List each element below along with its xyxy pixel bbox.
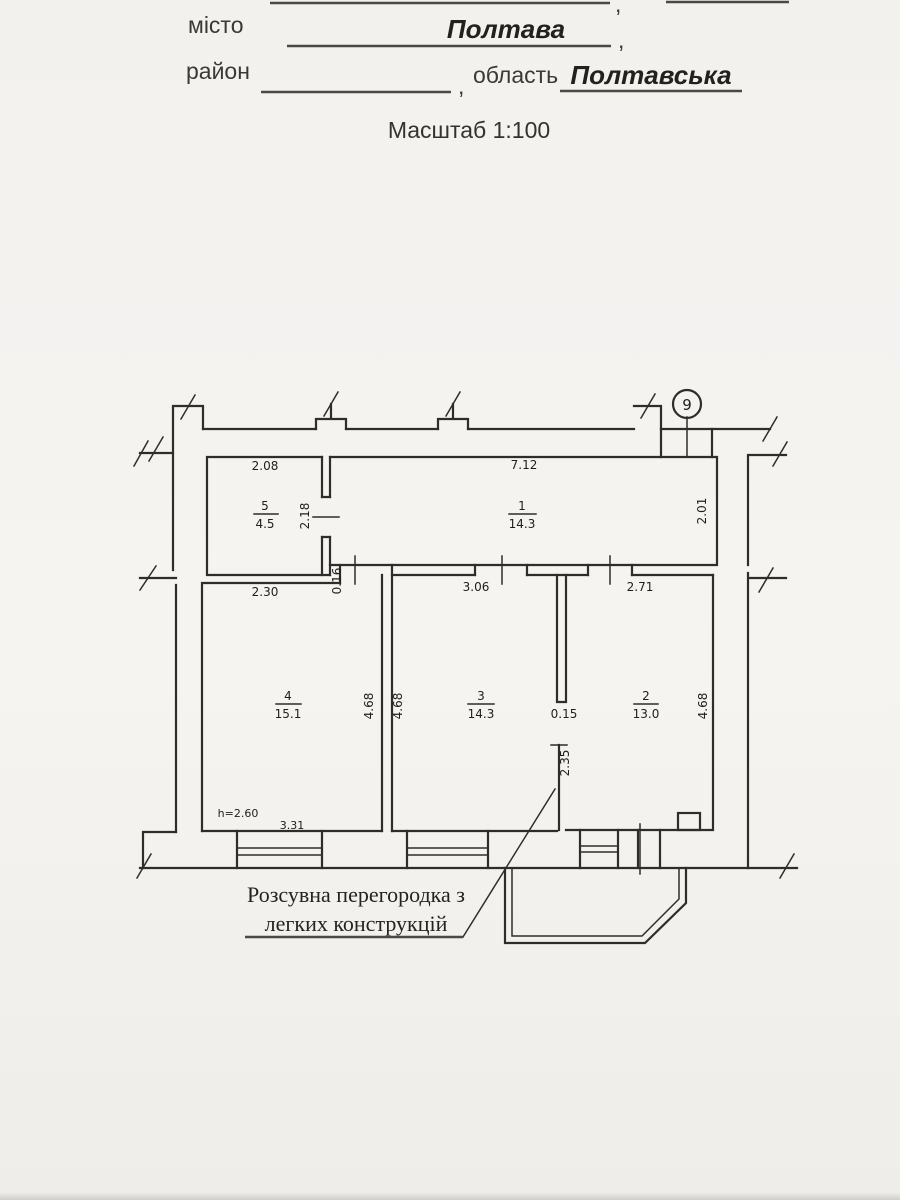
scan-edge-shadow xyxy=(0,1192,900,1200)
dim-room4-depth: 4.68 xyxy=(362,693,376,720)
annotation-line2: легких конструкцій xyxy=(265,911,448,936)
room2-area: 13.0 xyxy=(633,707,660,721)
dim-room2-top: 2.71 xyxy=(627,580,654,594)
balcony xyxy=(505,868,686,943)
room4-area: 15.1 xyxy=(275,707,302,721)
room1-area: 14.3 xyxy=(509,517,536,531)
dim-room3-top: 3.06 xyxy=(463,580,490,594)
district-label: район xyxy=(186,58,250,84)
room5-number: 5 xyxy=(261,499,269,513)
city-comma: , xyxy=(618,27,624,53)
room1-number: 1 xyxy=(518,499,526,513)
header-form: , місто Полтава , район , область Полтав… xyxy=(186,0,789,143)
dim-partition-thickness: 0.15 xyxy=(551,707,578,721)
interior-walls xyxy=(202,457,717,831)
floor-plan-drawing: , місто Полтава , район , область Полтав… xyxy=(0,0,900,1200)
room-labels: 1 14.3 5 4.5 4 15.1 3 14.3 2 13.0 xyxy=(254,499,659,721)
city-label: місто xyxy=(188,12,244,38)
dim-room5-door: 2.18 xyxy=(298,503,312,530)
district-comma: , xyxy=(458,73,464,99)
dim-ceiling-height: h=2.60 xyxy=(218,807,259,820)
partition-annotation: Розсувна перегородка з легких конструкці… xyxy=(247,882,465,936)
scale-label: Масштаб 1:100 xyxy=(388,117,550,143)
exterior-walls xyxy=(134,392,797,878)
oblast-label: область xyxy=(473,62,558,88)
room4-number: 4 xyxy=(284,689,292,703)
dim-room2-depth: 4.68 xyxy=(696,693,710,720)
room3-number: 3 xyxy=(477,689,485,703)
dim-window-span: 3.31 xyxy=(280,819,305,832)
scanned-floorplan-page: , місто Полтава , район , область Полтав… xyxy=(0,0,900,1200)
city-value: Полтава xyxy=(447,14,565,44)
annotation-line1: Розсувна перегородка з xyxy=(247,882,465,907)
oblast-value: Полтавська xyxy=(570,60,731,90)
header-top-comma: , xyxy=(615,0,621,17)
room2-number: 2 xyxy=(642,689,650,703)
dim-room4-width: 2.30 xyxy=(252,585,279,599)
axis-number: 9 xyxy=(682,396,692,414)
dim-partition-length: 2.35 xyxy=(558,750,572,777)
annotation-leader-line xyxy=(463,789,555,937)
room3-area: 14.3 xyxy=(468,707,495,721)
axis-marker-9: 9 xyxy=(673,390,701,418)
dim-room5-width: 2.08 xyxy=(252,459,279,473)
dimension-labels: 2.08 7.12 2.18 2.01 2.30 0.16 3.06 2.71 … xyxy=(218,458,710,832)
dim-step: 0.16 xyxy=(330,568,344,595)
dim-room1-width: 7.12 xyxy=(511,458,538,472)
dim-room1-right: 2.01 xyxy=(695,498,709,525)
dim-room3-depth: 4.68 xyxy=(391,693,405,720)
room5-area: 4.5 xyxy=(255,517,274,531)
